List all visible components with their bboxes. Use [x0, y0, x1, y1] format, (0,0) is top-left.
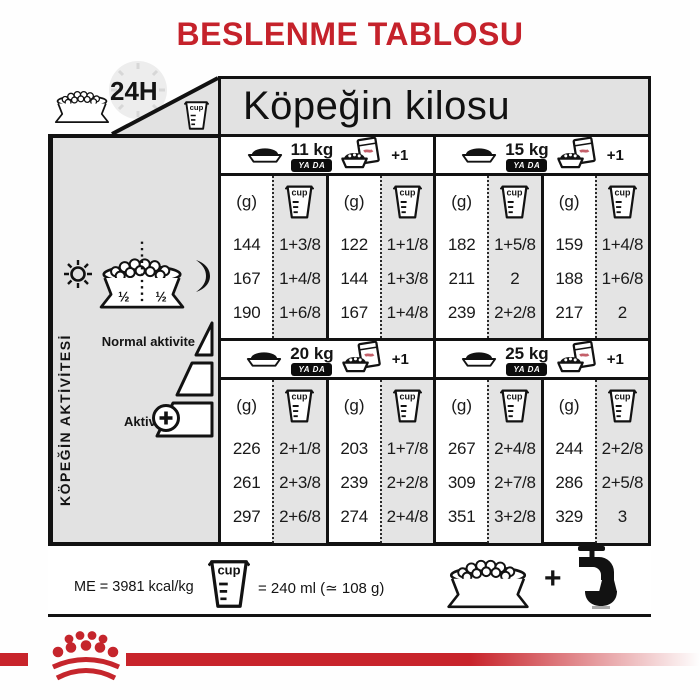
cups-value: 1+1/8: [387, 228, 429, 262]
legend-row: ME = 3981 kcal/kg = 240 ml (≃ 108 g) +: [48, 546, 651, 617]
bowl-icon: [460, 146, 498, 164]
grams-value: 309: [448, 466, 475, 500]
crown-logo: [44, 630, 128, 690]
red-band-right: [126, 653, 700, 666]
weight-section-25kg: 25 kg YA DA +1 (g) 267 309 351 2: [436, 341, 648, 543]
cup-icon: [500, 184, 529, 220]
food-bowl-icon: [50, 84, 114, 130]
cups-value: 1+4/8: [387, 296, 429, 330]
grams-column: (g) 267 309 351: [436, 380, 487, 543]
grams-value: 188: [555, 262, 582, 296]
or-badge: YA DA: [291, 363, 332, 376]
cups-value: 1+6/8: [602, 262, 644, 296]
bowl-and-pouch-icon: [341, 341, 385, 373]
bowl-and-pouch-icon: [556, 137, 600, 169]
cups-value: 1+3/8: [279, 228, 321, 262]
half-left-label: ½: [118, 290, 129, 305]
grams-header: (g): [559, 396, 580, 416]
bowl-icon: [460, 350, 498, 368]
cups-value: 2+2/8: [602, 432, 644, 466]
cups-value: 2+4/8: [494, 432, 536, 466]
bowl-and-pouch-icon: [556, 341, 600, 373]
grams-value: 190: [233, 296, 260, 330]
cup-icon: [608, 388, 637, 424]
cup-icon: [393, 184, 422, 220]
dog-weight-header: Köpeğin kilosu: [218, 76, 651, 134]
grams-column: (g) 144 167 190: [221, 176, 272, 338]
grams-column: (g) 122 144 167: [326, 176, 380, 338]
cups-value: 3+2/8: [494, 500, 536, 534]
grams-value: 239: [448, 296, 475, 330]
grams-value: 297: [233, 500, 260, 534]
grams-value: 203: [340, 432, 367, 466]
grams-column: (g) 182 211 239: [436, 176, 487, 338]
cup-icon: [285, 388, 314, 424]
weight-header-row: 25 kg YA DA +1: [436, 341, 648, 380]
plus-one-label: +1: [607, 351, 624, 368]
dog-weight-label: Köpeğin kilosu: [243, 84, 510, 129]
grams-value: 274: [340, 500, 367, 534]
grams-value: 261: [233, 466, 260, 500]
red-band-left: [0, 653, 28, 666]
grams-value: 351: [448, 500, 475, 534]
page-title: BESLENME TABLOSU: [0, 16, 700, 53]
grams-value: 182: [448, 228, 475, 262]
grams-value: 244: [555, 432, 582, 466]
grams-header: (g): [344, 396, 365, 416]
grams-value: 144: [340, 262, 367, 296]
activity-ramp-icon: [150, 322, 216, 442]
cups-value: 2+4/8: [387, 500, 429, 534]
cup-icon: [500, 388, 529, 424]
cups-value: 1+3/8: [387, 262, 429, 296]
weight-label: 25 kg: [505, 345, 548, 362]
24h-label: 24H: [110, 76, 158, 107]
grams-header: (g): [344, 192, 365, 212]
cups-column: 1+1/8 1+3/8 1+4/8: [380, 176, 433, 338]
bowl-and-pouch-icon: [340, 137, 384, 169]
cups-value: 2+3/8: [279, 466, 321, 500]
feeding-table-page: BESLENME TABLOSU 24H: [0, 0, 700, 700]
bowl-icon: [246, 146, 284, 164]
columns: (g) 267 309 351 2+4/8 2+7/8 3+2/8 (g) 24…: [436, 380, 648, 543]
cups-column: 1+7/8 2+2/8 2+4/8: [380, 380, 433, 543]
weight-header-row: 20 kg YA DA +1: [221, 341, 433, 380]
weight-label: 11 kg: [291, 141, 334, 158]
metabolizable-energy-label: ME = 3981 kcal/kg: [74, 579, 194, 595]
grams-value: 159: [555, 228, 582, 262]
plus-one-label: +1: [607, 147, 624, 164]
weight-section-20kg: 20 kg YA DA +1 (g) 226 261 297 2: [221, 341, 436, 543]
grams-value: 267: [448, 432, 475, 466]
cups-value: 2+1/8: [279, 432, 321, 466]
columns: (g) 226 261 297 2+1/8 2+3/8 2+6/8 (g) 20…: [221, 380, 433, 543]
cups-value: 2+5/8: [602, 466, 644, 500]
grams-header: (g): [451, 192, 472, 212]
cups-value: 2: [510, 262, 519, 296]
grams-value: 329: [555, 500, 582, 534]
weight-section-11kg: 11 kg YA DA +1 (g) 144 167 190 1: [221, 137, 436, 341]
or-badge: YA DA: [291, 159, 332, 172]
columns: (g) 182 211 239 1+5/8 2 2+2/8 (g) 159: [436, 176, 648, 338]
grams-column: (g) 244 286 329: [541, 380, 595, 543]
cups-value: 1+7/8: [387, 432, 429, 466]
activity-sidebar: ½ ½ KÖPEĞİN AKTİVİTESİ Normal aktivite A…: [48, 134, 218, 546]
cups-column: 1+3/8 1+4/8 1+6/8: [272, 176, 325, 338]
cup-icon: [608, 184, 637, 220]
grams-header: (g): [451, 396, 472, 416]
food-bowl-icon: [436, 556, 540, 612]
water-tap-icon: [568, 546, 626, 610]
grams-column: (g) 203 239 274: [326, 380, 380, 543]
cup-icon: [184, 100, 209, 131]
cups-value: 2: [618, 296, 627, 330]
grams-header: (g): [236, 192, 257, 212]
cups-column: 1+5/8 2 2+2/8: [487, 176, 540, 338]
plus-one-label: +1: [391, 147, 408, 164]
table-corner: 24H: [48, 76, 218, 134]
grams-value: 144: [233, 228, 260, 262]
cups-value: 2+6/8: [279, 500, 321, 534]
cups-value: 1+6/8: [279, 296, 321, 330]
grams-value: 122: [340, 228, 367, 262]
grams-header: (g): [559, 192, 580, 212]
cups-column: 2+1/8 2+3/8 2+6/8: [272, 380, 325, 543]
cups-value: 2+7/8: [494, 466, 536, 500]
cups-column: 2+2/8 2+5/8 3: [595, 380, 648, 543]
cups-value: 1+4/8: [279, 262, 321, 296]
grams-column: (g) 159 188 217: [541, 176, 595, 338]
grams-value: 167: [233, 262, 260, 296]
plus-one-label: +1: [392, 351, 409, 368]
grams-value: 239: [340, 466, 367, 500]
cup-icon: [393, 388, 422, 424]
portions-grid: 11 kg YA DA +1 (g) 144 167 190 1: [218, 134, 651, 546]
feeding-table: 24H Köpeğin kilosu: [48, 76, 651, 617]
weight-header-row: 15 kg YA DA +1: [436, 137, 648, 176]
cups-value: 1+5/8: [494, 228, 536, 262]
grams-value: 286: [555, 466, 582, 500]
or-badge: YA DA: [506, 159, 547, 172]
weight-label: 15 kg: [505, 141, 548, 158]
cups-value: 1+4/8: [602, 228, 644, 262]
cups-column: 1+4/8 1+6/8 2: [595, 176, 648, 338]
weight-header-row: 11 kg YA DA +1: [221, 137, 433, 176]
cup-icon: [285, 184, 314, 220]
columns: (g) 144 167 190 1+3/8 1+4/8 1+6/8 (g) 12…: [221, 176, 433, 338]
or-badge: YA DA: [506, 363, 547, 376]
half-portion-bowl-icon: ½ ½: [92, 238, 192, 318]
weight-section-15kg: 15 kg YA DA +1 (g) 182 211 239 1: [436, 137, 648, 341]
grams-value: 226: [233, 432, 260, 466]
grams-value: 217: [555, 296, 582, 330]
bowl-icon: [245, 350, 283, 368]
cups-column: 2+4/8 2+7/8 3+2/8: [487, 380, 540, 543]
half-right-label: ½: [155, 290, 166, 305]
plus-sign: +: [544, 562, 562, 596]
grams-header: (g): [236, 396, 257, 416]
cup-icon: [208, 559, 250, 609]
cup-equivalence-label: = 240 ml (≃ 108 g): [258, 579, 384, 597]
weight-label: 20 kg: [290, 345, 333, 362]
moon-icon: [191, 260, 212, 292]
grams-value: 167: [340, 296, 367, 330]
cups-value: 2+2/8: [494, 296, 536, 330]
cups-value: 3: [618, 500, 627, 534]
cups-value: 2+2/8: [387, 466, 429, 500]
grams-value: 211: [449, 262, 475, 296]
grams-column: (g) 226 261 297: [221, 380, 272, 543]
